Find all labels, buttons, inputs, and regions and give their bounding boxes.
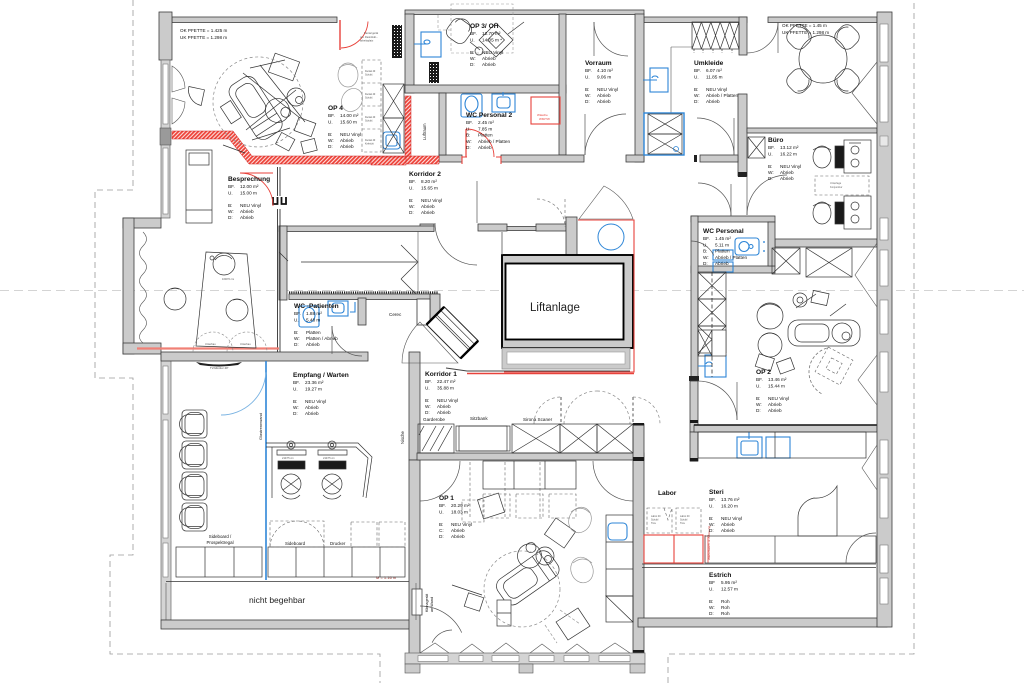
svg-text:BF.: BF. [756, 377, 763, 382]
svg-text:BF.: BF. [768, 145, 775, 150]
svg-text:Büro: Büro [768, 137, 783, 144]
svg-text:D:: D: [228, 215, 233, 220]
svg-text:W:: W: [709, 605, 715, 610]
svg-text:Estrich: Estrich [709, 572, 731, 579]
svg-text:W:: W: [409, 204, 415, 209]
svg-text:D:: D: [409, 210, 414, 215]
svg-text:7.85 m: 7.85 m [478, 126, 492, 131]
svg-text:Prospektregal: Prospektregal [206, 540, 233, 545]
svg-text:NEU Vinyl: NEU Vinyl [706, 87, 727, 92]
svg-text:Glastrennwand: Glastrennwand [258, 413, 263, 440]
svg-text:B:: B: [328, 132, 332, 137]
svg-text:W:: W: [470, 56, 476, 61]
svg-text:Umkleide: Umkleide [694, 60, 724, 67]
svg-text:NEU Vinyl: NEU Vinyl [482, 50, 503, 55]
svg-text:B:: B: [466, 133, 470, 138]
svg-text:D:: D: [709, 528, 714, 533]
svg-text:19.27 m: 19.27 m [305, 386, 322, 391]
svg-text:OP 1: OP 1 [439, 495, 454, 502]
svg-text:Abrieb: Abrieb [240, 215, 254, 220]
svg-text:U.: U. [694, 74, 699, 79]
svg-text:W:: W: [328, 138, 334, 143]
svg-text:NEU Vinyl: NEU Vinyl [340, 132, 361, 137]
svg-text:Abrieb: Abrieb [721, 528, 735, 533]
svg-text:22.47 m²: 22.47 m² [437, 379, 456, 384]
svg-text:W:: W: [709, 522, 715, 527]
svg-text:D:: D: [470, 62, 475, 67]
svg-text:W:: W: [294, 336, 300, 341]
svg-text:Cerec: Cerec [389, 312, 402, 317]
svg-text:U.: U. [709, 503, 714, 508]
svg-text:Unterbau: Unterbau [205, 342, 216, 346]
svg-text:U.: U. [409, 185, 414, 190]
svg-text:W:: W: [293, 405, 299, 410]
svg-text:Abrieb: Abrieb [780, 176, 794, 181]
svg-text:Schubl.: Schubl. [365, 119, 373, 122]
svg-text:B:: B: [709, 599, 713, 604]
svg-text:W:: W: [694, 93, 700, 98]
svg-text:NEU Vinyl: NEU Vinyl [721, 516, 742, 521]
svg-text:B:: B: [768, 164, 772, 169]
svg-text:U.: U. [439, 509, 444, 514]
svg-text:Abrieb: Abrieb [721, 522, 735, 527]
svg-text:D:: D: [585, 99, 590, 104]
svg-text:Luftraum: Luftraum [422, 123, 427, 140]
svg-text:15.44 m: 15.44 m [768, 383, 785, 388]
svg-text:BF.: BF. [228, 184, 235, 189]
svg-text:Kehricht: Kehricht [365, 142, 374, 145]
svg-text:Türe: Türe [651, 522, 657, 525]
svg-text:D:: D: [756, 408, 761, 413]
svg-text:U.: U. [293, 386, 298, 391]
svg-text:U.: U. [585, 74, 590, 79]
svg-text:Abrieb: Abrieb [597, 93, 611, 98]
svg-text:NEU Vinyl: NEU Vinyl [305, 399, 326, 404]
svg-text:BF.: BF. [470, 31, 477, 36]
svg-text:12.70 m²: 12.70 m² [482, 31, 501, 36]
svg-text:Korridor 1: Korridor 1 [425, 371, 457, 378]
svg-text:UK PFETTE = 1.298 m: UK PFETTE = 1.298 m [180, 35, 227, 40]
svg-text:Abrieb: Abrieb [451, 528, 465, 533]
svg-text:NEU Vinyl: NEU Vinyl [421, 198, 442, 203]
svg-text:Abrieb: Abrieb [437, 404, 451, 409]
svg-text:D:: D: [768, 176, 773, 181]
svg-text:Abrieb: Abrieb [597, 99, 611, 104]
svg-text:11.85 m: 11.85 m [706, 74, 723, 79]
svg-text:M = 1.16 m: M = 1.16 m [376, 575, 397, 580]
svg-text:an Wand: an Wand [430, 597, 434, 612]
svg-text:UK PFETTE = 1.298 m: UK PFETTE = 1.298 m [782, 30, 829, 35]
svg-text:U.: U. [768, 151, 773, 156]
svg-text:15.00 m: 15.00 m [240, 190, 257, 195]
svg-text:5.95 m²: 5.95 m² [721, 580, 737, 585]
svg-text:14.05 m *: 14.05 m * [482, 37, 502, 42]
svg-text:B:: B: [585, 87, 589, 92]
svg-text:BF.: BF. [409, 179, 416, 184]
svg-text:OP 3/ OH: OP 3/ OH [470, 23, 499, 30]
svg-text:TV-Monitor 40": TV-Monitor 40" [210, 366, 229, 370]
svg-text:Sideboard /: Sideboard / [209, 534, 232, 539]
svg-text:13.12 m²: 13.12 m² [780, 145, 799, 150]
svg-text:Abrieb: Abrieb [451, 534, 465, 539]
svg-text:NEU Vinyl: NEU Vinyl [437, 398, 458, 403]
svg-text:2.45 m²: 2.45 m² [478, 120, 494, 125]
svg-text:B:: B: [703, 249, 707, 254]
svg-text:Unterlage: Unterlage [830, 181, 842, 185]
svg-text:8.20 m²: 8.20 m² [421, 179, 437, 184]
svg-text:W:: W: [466, 139, 472, 144]
svg-text:Steri: Steri [709, 489, 724, 496]
svg-text:B:: B: [439, 522, 443, 527]
svg-text:OP 2: OP 2 [756, 369, 771, 376]
svg-text:160/70 cm: 160/70 cm [222, 277, 234, 281]
svg-text:BF.: BF. [293, 380, 300, 385]
svg-text:D:: D: [703, 261, 708, 266]
svg-text:12.00 m²: 12.00 m² [240, 184, 259, 189]
svg-text:Abrieb: Abrieb [340, 138, 354, 143]
svg-text:D:: D: [328, 144, 333, 149]
svg-text:Liftanlage: Liftanlage [530, 302, 580, 314]
svg-text:W:: W: [756, 402, 762, 407]
svg-text:OK PFETTE = 1.425 m: OK PFETTE = 1.425 m [180, 28, 228, 33]
svg-text:OP 4: OP 4 [328, 105, 343, 112]
svg-text:Sirona Scaner: Sirona Scaner [523, 417, 553, 422]
svg-text:D:: D: [293, 411, 298, 416]
svg-text:18.03 m: 18.03 m [451, 509, 468, 514]
svg-text:BF.: BF. [425, 379, 432, 384]
svg-text:WC Personal 2: WC Personal 2 [466, 112, 513, 119]
svg-text:U.: U. [703, 242, 708, 247]
svg-text:Schubl.: Schubl. [365, 73, 373, 76]
svg-text:4.10 m²: 4.10 m² [597, 68, 613, 73]
svg-text:B:: B: [425, 398, 429, 403]
svg-text:U.: U. [425, 385, 430, 390]
svg-text:Abrieb: Abrieb [240, 209, 254, 214]
svg-text:210/75 cm: 210/75 cm [282, 457, 294, 460]
svg-text:U.: U. [709, 586, 714, 591]
svg-text:opt. Desinfekt.-: opt. Desinfekt.- [360, 35, 378, 39]
svg-text:Abrieb: Abrieb [340, 144, 354, 149]
svg-text:Abrieb: Abrieb [768, 408, 782, 413]
svg-text:Abrieb: Abrieb [715, 261, 729, 266]
svg-text:D:: D: [294, 342, 299, 347]
svg-text:Klimagerät: Klimagerät [425, 593, 429, 612]
svg-text:Labor: Labor [658, 490, 677, 497]
svg-text:5.48 m: 5.48 m [306, 317, 320, 322]
svg-text:BF.: BF. [709, 497, 716, 502]
svg-text:5.11 m: 5.11 m [715, 242, 729, 247]
svg-text:13.76 m²: 13.76 m² [721, 497, 740, 502]
svg-text:Platten: Platten [306, 330, 321, 335]
svg-text:W:: W: [585, 93, 591, 98]
svg-text:Schubl.: Schubl. [365, 96, 373, 99]
svg-text:Abrieb: Abrieb [437, 410, 451, 415]
svg-text:9.06 m: 9.06 m [597, 74, 611, 79]
svg-text:BF.: BF. [439, 503, 446, 508]
svg-text:Abrieb / Platten: Abrieb / Platten [706, 93, 738, 98]
svg-text:Nische: Nische [400, 431, 405, 444]
svg-text:BF.: BF. [466, 120, 473, 125]
svg-text:Abrieb: Abrieb [421, 210, 435, 215]
svg-text:16.22 m: 16.22 m [780, 151, 797, 156]
svg-text:W:: W: [228, 209, 234, 214]
svg-text:BF.: BF. [294, 311, 301, 316]
svg-text:Roh: Roh [721, 605, 730, 610]
svg-text:WC Personal: WC Personal [703, 228, 744, 235]
svg-text:Sideboard: Sideboard [285, 541, 306, 546]
svg-text:Abrieb: Abrieb [305, 411, 319, 416]
svg-text:12.57 m: 12.57 m [721, 586, 738, 591]
svg-text:16.20 m: 16.20 m [721, 503, 738, 508]
svg-text:BF.: BF. [328, 113, 335, 118]
svg-text:B:: B: [470, 50, 474, 55]
svg-text:NEU Vinyl: NEU Vinyl [768, 396, 789, 401]
svg-text:B:: B: [293, 399, 297, 404]
svg-text:W:: W: [768, 170, 774, 175]
svg-text:Konjunktur: Konjunktur [830, 185, 843, 189]
svg-text:nicht begehbar: nicht begehbar [249, 595, 305, 605]
svg-text:Besprechung: Besprechung [228, 176, 270, 183]
svg-text:U.: U. [470, 37, 475, 42]
svg-text:U.: U. [228, 190, 233, 195]
svg-text:Türe: Türe [680, 522, 686, 525]
svg-text:Abrieb: Abrieb [768, 402, 782, 407]
svg-text:U.: U. [756, 383, 761, 388]
svg-text:B:: B: [409, 198, 413, 203]
svg-text:Abrieb: Abrieb [482, 56, 496, 61]
svg-text:NEU Vinyl: NEU Vinyl [240, 203, 261, 208]
svg-text:Korridor 2: Korridor 2 [409, 171, 441, 178]
svg-text:Unterbau: Unterbau [240, 342, 251, 346]
svg-text:NEU Vinyl: NEU Vinyl [597, 87, 618, 92]
svg-text:U.: U. [466, 126, 471, 131]
svg-text:Platten: Platten [715, 249, 730, 254]
svg-text:B:: B: [228, 203, 232, 208]
svg-text:D:: D: [694, 99, 699, 104]
svg-text:Garderobe: Garderobe [423, 417, 445, 422]
svg-text:D:: D: [466, 145, 471, 150]
svg-text:arbeitsplatz: arbeitsplatz [360, 38, 374, 42]
svg-text:Abrieb: Abrieb [305, 405, 319, 410]
svg-text:1.88 m²: 1.88 m² [306, 311, 322, 316]
svg-text:Drucker: Drucker [330, 541, 346, 546]
svg-text:WC ·Patienten: WC ·Patienten [294, 303, 339, 310]
svg-text:13.46 m²: 13.46 m² [768, 377, 787, 382]
svg-text:BF: BF [709, 580, 715, 585]
svg-text:NEU Vinyl: NEU Vinyl [780, 164, 801, 169]
svg-text:B:: B: [756, 396, 760, 401]
svg-text:Sitzbank: Sitzbank [470, 416, 488, 421]
svg-text:Roh: Roh [721, 599, 730, 604]
svg-text:B:: B: [709, 516, 713, 521]
svg-text:14.00 m²: 14.00 m² [340, 113, 359, 118]
svg-text:BF.: BF. [585, 68, 592, 73]
svg-text:Roh: Roh [721, 611, 730, 616]
svg-text:35.88 m: 35.88 m [437, 385, 454, 390]
svg-text:15.65 m: 15.65 m [421, 185, 438, 190]
svg-text:B:: B: [294, 330, 298, 335]
svg-text:BF.: BF. [694, 68, 701, 73]
svg-text:15.60 m: 15.60 m [340, 119, 357, 124]
svg-text:Abrieb: Abrieb [780, 170, 794, 175]
svg-text:C:: C: [439, 528, 444, 533]
svg-text:210/75 cm: 210/75 cm [323, 457, 335, 460]
svg-text:Abrieb: Abrieb [706, 99, 720, 104]
svg-text:Abrieb: Abrieb [306, 342, 320, 347]
svg-text:B:: B: [694, 87, 698, 92]
svg-text:Abrieb / Platten: Abrieb / Platten [715, 255, 747, 260]
svg-text:U.: U. [328, 119, 333, 124]
svg-text:D:: D: [425, 410, 430, 415]
svg-text:NEU Vinyl: NEU Vinyl [451, 522, 472, 527]
svg-text:Dental gerät: Dental gerät [364, 31, 378, 35]
svg-text:Platten: Platten [478, 133, 493, 138]
svg-text:Abrieb: Abrieb [478, 145, 492, 150]
svg-text:20.29 m²: 20.29 m² [451, 503, 470, 508]
svg-text:6.07 m²: 6.07 m² [706, 68, 722, 73]
svg-text:W:: W: [425, 404, 431, 409]
svg-text:1.45 m²: 1.45 m² [715, 236, 731, 241]
svg-text:D:: D: [709, 611, 714, 616]
svg-text:BF.: BF. [703, 236, 710, 241]
svg-text:Empfang / Warten: Empfang / Warten [293, 372, 349, 379]
svg-text:WM/TW: WM/TW [539, 117, 550, 121]
svg-text:Abrieb: Abrieb [421, 204, 435, 209]
svg-text:OK PFETTE = 1.45 m: OK PFETTE = 1.45 m [782, 23, 827, 28]
svg-text:Platten / Abrieb: Platten / Abrieb [306, 336, 338, 341]
svg-text:Vorraum: Vorraum [585, 60, 612, 67]
svg-text:Abrieb / Platten: Abrieb / Platten [478, 139, 510, 144]
svg-text:U.: U. [294, 317, 299, 322]
svg-text:W:: W: [703, 255, 709, 260]
svg-text:D:: D: [439, 534, 444, 539]
svg-text:23.36 m²: 23.36 m² [305, 380, 324, 385]
svg-text:Abrieb: Abrieb [482, 62, 496, 67]
